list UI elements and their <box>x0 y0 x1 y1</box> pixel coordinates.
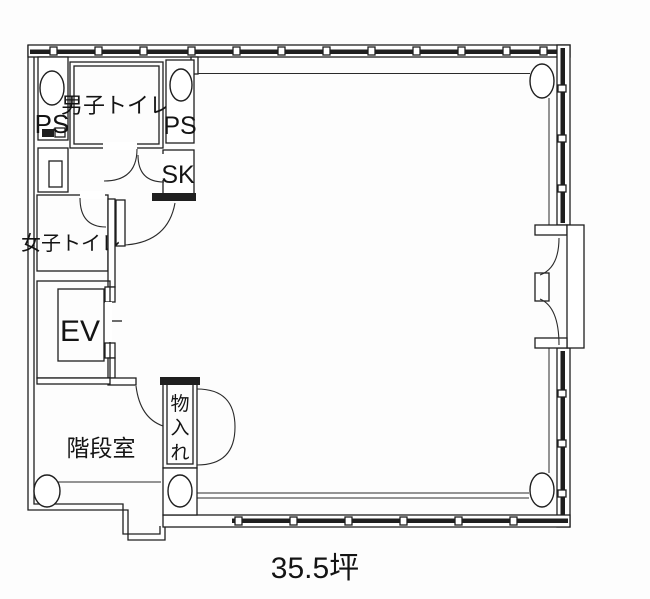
room-label: SK <box>161 161 195 189</box>
door-frame-bump <box>567 225 584 348</box>
entrance-right <box>535 225 584 348</box>
room-label-char: 物 <box>170 393 189 415</box>
floorplan-page: PS 男子トイレ PS SK 女子トイレ <box>0 0 650 599</box>
room-label-char: れ <box>170 443 189 464</box>
door-frame-plate <box>535 225 567 235</box>
column-top-right <box>530 64 554 98</box>
room-womens-toilet: 女子トイレ <box>21 191 121 271</box>
door-arc <box>80 198 106 227</box>
door-arc <box>540 238 559 275</box>
room-label: 男子トイレ <box>61 93 171 118</box>
room-label: EV <box>60 315 100 348</box>
closet-fixture <box>49 161 62 187</box>
area-label: 35.5坪 <box>271 552 359 585</box>
window-glass-line <box>561 351 566 524</box>
room-label-char: 入 <box>170 418 189 439</box>
door-arc <box>136 386 163 426</box>
window-glass-line <box>30 50 568 55</box>
door-arc <box>197 427 235 465</box>
vestibule <box>116 193 196 246</box>
door-arc <box>138 155 164 182</box>
column <box>168 475 192 507</box>
wall <box>37 378 110 384</box>
column <box>34 475 60 507</box>
room-label: PS <box>163 112 196 140</box>
column-box <box>163 468 197 515</box>
window-band-bottom <box>163 515 570 527</box>
window-band-top <box>28 45 570 57</box>
door-arc <box>197 389 235 427</box>
door-arc <box>125 203 175 245</box>
door-arc <box>104 149 137 181</box>
room-elevator: EV <box>37 281 112 378</box>
beam-lines <box>191 57 549 498</box>
closet <box>38 148 68 192</box>
floor-plan: PS 男子トイレ PS SK 女子トイレ <box>0 0 650 599</box>
pipe-column <box>170 69 192 101</box>
door-leaf <box>535 273 549 301</box>
wall-cap <box>152 193 196 201</box>
room-label: 階段室 <box>67 435 136 461</box>
room-staircase: 階段室 <box>34 378 163 507</box>
room-mens-toilet: 男子トイレ <box>61 62 171 181</box>
door-frame-plate <box>535 338 567 348</box>
room-ps-right: PS <box>163 60 196 143</box>
room-sk: SK <box>138 150 195 196</box>
room-storage: 物 入 れ <box>160 377 235 468</box>
room-label: 女子トイレ <box>21 232 121 255</box>
column-bottom-right <box>530 473 554 507</box>
